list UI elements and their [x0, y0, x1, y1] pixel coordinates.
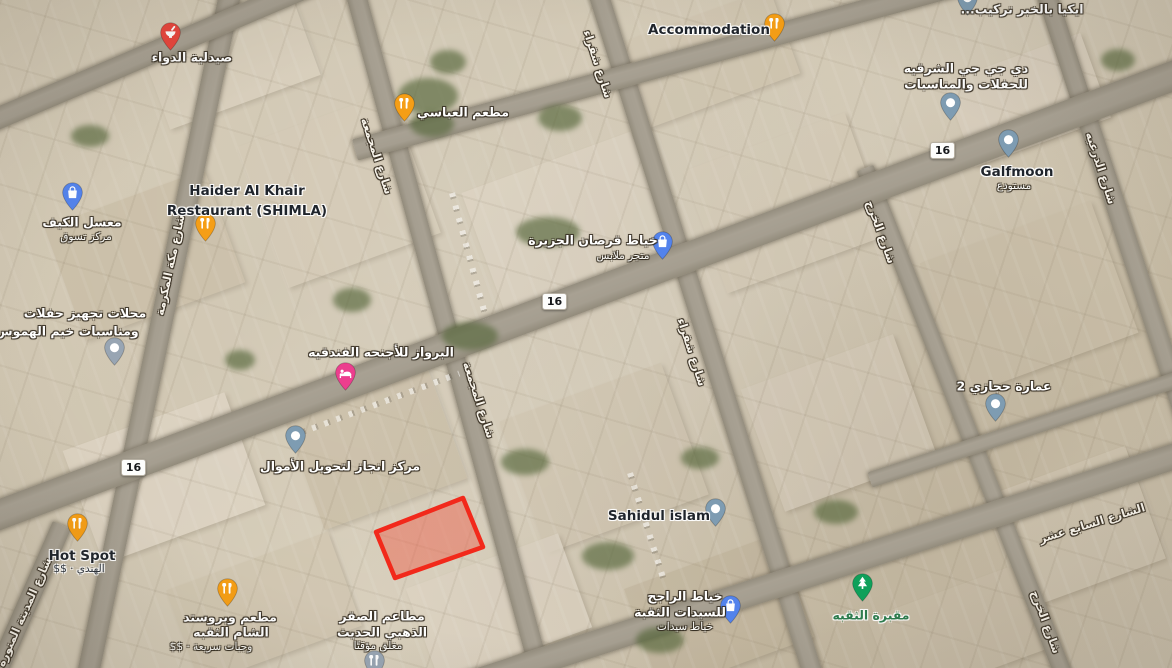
hot-spot-label[interactable]: الهندي · $$ — [53, 563, 104, 575]
khayyat-alrajih-label[interactable]: خياط سيدات — [657, 621, 713, 633]
brosted-alsham-label[interactable]: مطعم وبروستد — [183, 610, 277, 625]
alburwaz-suites-pin bed-icon[interactable] — [334, 362, 357, 391]
abbasi-restaurant-label[interactable]: مطعم العباسي — [417, 105, 509, 120]
khayyat-alrajih-label[interactable]: للسيدات الثقبة — [634, 605, 726, 620]
dj-alsharqiya-label[interactable]: دي جي جي الشرقيه — [904, 61, 1029, 76]
khayyat-qursan-label[interactable]: متجر ملابس — [597, 250, 650, 262]
injaz-money-transfer-label[interactable]: مركز انجاز لتحويل الأموال — [260, 459, 420, 474]
maqbarat-althuqbah-pin tree-icon[interactable] — [851, 573, 874, 602]
dj-alsharqiya-label[interactable]: للحفلات والمناسبات — [904, 77, 1028, 92]
route-16-shield: 16 — [930, 142, 955, 159]
brosted-alsham-label[interactable]: وجبات سريعة · $$ — [170, 641, 253, 653]
mataem-alsaqr-pin restaurant-icon[interactable] — [363, 650, 386, 668]
route-16-shield: 16 — [542, 293, 567, 310]
mahallat-tajheez-label[interactable]: محلات تجهيز حفلات — [24, 306, 146, 321]
haider-alkhair-restaurant-label[interactable]: Haider Al Khair — [189, 183, 304, 199]
hot-spot-pin restaurant-icon[interactable] — [66, 513, 89, 542]
route-16-shield: 16 — [121, 459, 146, 476]
mataem-alsaqr-label[interactable]: مغلق مؤقتًا — [354, 640, 403, 652]
abbasi-restaurant-pin restaurant-icon[interactable] — [393, 93, 416, 122]
maasal-alkaif-label[interactable]: مركز تسوق — [60, 231, 111, 243]
haider-alkhair-restaurant-label[interactable]: Restaurant (SHIMLA) — [167, 203, 327, 219]
galfmoon-pin dot-icon[interactable] — [997, 129, 1020, 158]
ikea-alkhobar-label[interactable]: ايكيا بالخبر تركيب... — [960, 2, 1083, 17]
dj-alsharqiya-pin dot-icon[interactable] — [939, 92, 962, 121]
brosted-alsham-pin restaurant-icon[interactable] — [216, 578, 239, 607]
alburwaz-suites-label[interactable]: البرواز للأجنحه الفندقيه — [308, 345, 454, 360]
mahallat-tajheez-label[interactable]: ومناسبات خيم الهموس — [0, 324, 139, 339]
pharmacy-aldawa-pin pharmacy-icon[interactable] — [159, 22, 182, 51]
mataem-alsaqr-label[interactable]: مطاعم الصقر — [339, 609, 424, 624]
satellite-map[interactable]: 161616شارع مكة المكرمةشارع المجمعةشارع ا… — [0, 0, 1172, 668]
imarat-hijazi-2-label[interactable]: عمارة حجازي 2 — [957, 379, 1052, 394]
imarat-hijazi-2-pin dot-icon[interactable] — [984, 393, 1007, 422]
hot-spot-label[interactable]: Hot Spot — [49, 548, 116, 564]
galfmoon-label[interactable]: Galfmoon — [981, 164, 1054, 180]
mahallat-tajheez-pin dot-icon[interactable] — [103, 337, 126, 366]
khayyat-qursan-label[interactable]: خياط قرصان الجزيرة — [528, 233, 658, 248]
galfmoon-label[interactable]: مستودع — [997, 180, 1032, 192]
brosted-alsham-label[interactable]: الشام الثقبه — [193, 625, 269, 640]
highlighted-parcel-overlay — [0, 0, 1172, 668]
pharmacy-aldawa-label[interactable]: صيدلية الدواء — [152, 50, 233, 65]
accommodation-label[interactable]: Accommodation — [648, 22, 770, 38]
injaz-money-transfer-pin dot-icon[interactable] — [284, 425, 307, 454]
sahidul-islam-label[interactable]: Sahidul islam — [608, 508, 710, 524]
maasal-alkaif-label[interactable]: معسل الكيف — [42, 215, 121, 230]
highlighted-parcel-polygon — [376, 498, 483, 578]
khayyat-alrajih-label[interactable]: خياط الراجح — [647, 589, 722, 604]
maqbarat-althuqbah-label[interactable]: مقبرة الثقبه — [832, 608, 909, 623]
maasal-alkaif-pin shopping-icon[interactable] — [61, 182, 84, 211]
mataem-alsaqr-label[interactable]: الذهبي الحديث — [337, 625, 427, 640]
